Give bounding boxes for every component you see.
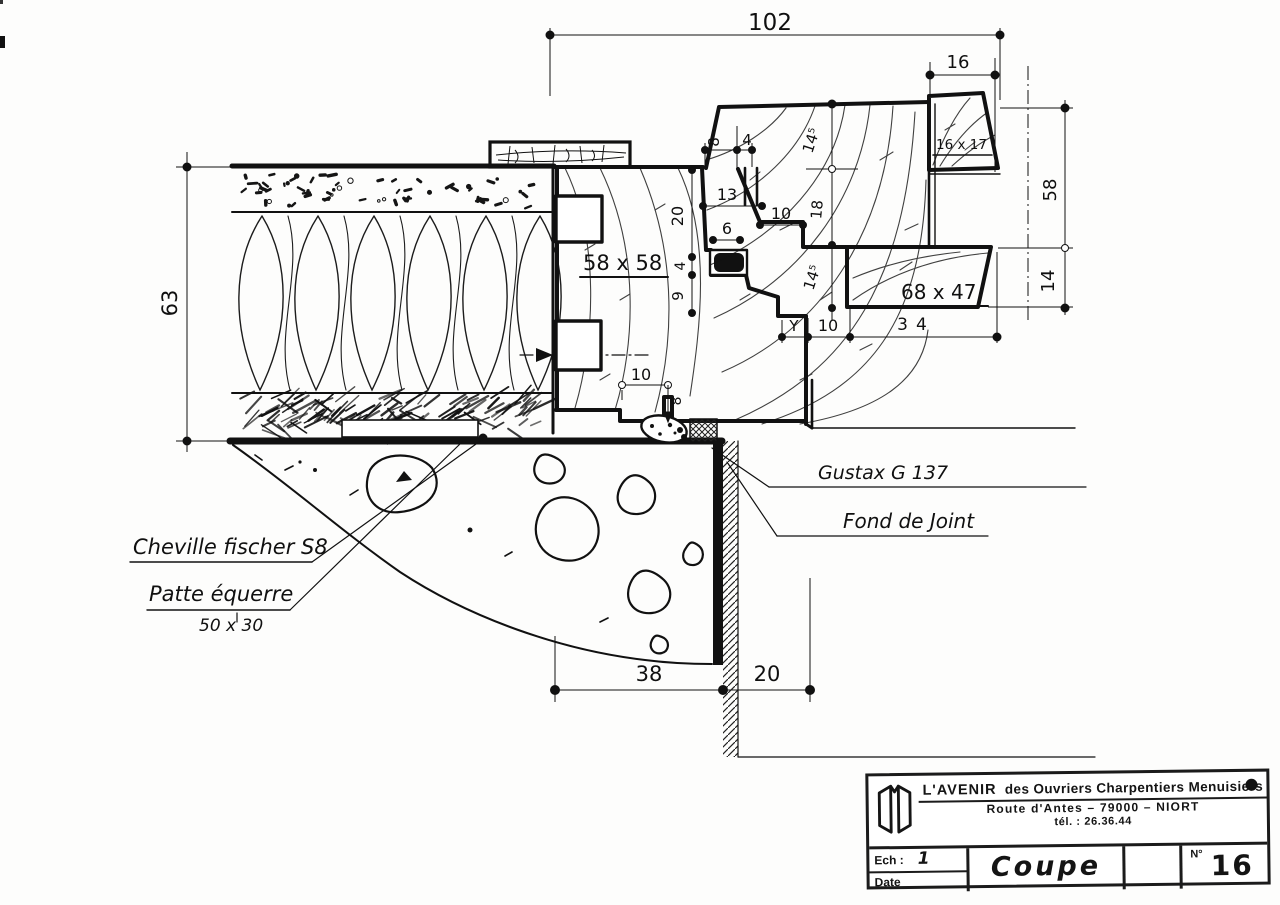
dimension-texts: 102 16 58 14 63 8 4 13 10 6 20 4 9 14⁵ 1… [158,10,1061,686]
sheet-title-cell: Coupe [969,846,1126,891]
company-phone: tél. : 26.36.44 [919,814,1268,832]
empty-cell [1125,846,1183,890]
sheet-number-cell: N°16 [1182,845,1268,889]
anchor-arrowhead [396,471,412,482]
angle-bracket [342,420,478,437]
dim-10-mid: 10 [818,316,838,335]
dim-overall: 102 [748,10,792,36]
dim-10-upper: 10 [771,204,791,223]
dimension-lines [176,28,1073,702]
packer-piece [490,142,630,167]
dim-y: Y [788,317,799,335]
joint-backing-rod [690,419,717,442]
label-frame-section: 58 x 58 [583,251,662,275]
aggregate-blobs [367,454,703,653]
dim-10-lower: 10 [631,365,651,384]
dim-20-vert: 20 [668,206,687,226]
dim-14-5-lower: 14⁵ [800,263,825,292]
sheet-title: Coupe [969,846,1122,888]
punch-dot [1245,779,1257,791]
insulation-texture [239,216,561,390]
scale-date-cell: Ech :1 Date [869,848,970,892]
anchor-leader-line [312,439,483,562]
label-bracket-size: 50 x 30 [199,616,263,636]
label-sash-section: 68 x 47 [901,280,976,304]
sheet-number-label: N° [1190,848,1202,860]
company-descriptor: des Ouvriers Charpentiers Menuisiers [1005,779,1263,797]
company-logo-icon [872,780,917,839]
title-block-header: L'AVENIR des Ouvriers Charpentiers Menui… [868,772,1267,850]
title-block: L'AVENIR des Ouvriers Charpentiers Menui… [865,769,1270,890]
dim-4-top: 4 [742,131,752,149]
sheet-number-value: 16 [1203,849,1254,883]
bracket-leader-line [290,442,462,610]
dim-8-vert: 8 [669,397,685,406]
plaster-speckle-texture [242,174,534,209]
date-label: Date [870,872,967,889]
dim-20-bottom: 20 [754,662,781,686]
concrete-section [233,428,1095,757]
dim-right-upper: 58 [1040,179,1061,202]
label-bracket: Patte équerre [149,582,293,606]
scale-label: Ech : [874,853,904,867]
scanned-technical-drawing: 102 16 58 14 63 8 4 13 10 6 20 4 9 14⁵ 1… [0,0,1280,905]
dim-14-5-upper: 14⁵ [799,126,824,155]
wall-section [230,166,722,444]
dim-8-top: 8 [705,137,723,147]
label-anchor: Cheville fischer S8 [133,535,328,559]
dim-bead-width: 16 [947,52,970,73]
dim-34: 34 [897,315,935,335]
dim-9-vert: 9 [669,291,687,301]
dim-wall-thickness: 63 [158,290,182,317]
title-block-footer: Ech :1 Date Coupe N°16 [869,845,1267,893]
dim-4-vert: 4 [673,261,689,270]
label-bead-section: 16 x 17 [936,137,987,153]
scan-artifacts [0,0,5,48]
label-sealant: Gustax G 137 [818,462,948,484]
company-name-line: L'AVENIR des Ouvriers Charpentiers Menui… [918,778,1267,803]
label-joint-filler: Fond de Joint [843,509,975,533]
dim-13: 13 [717,185,737,204]
company-name: L'AVENIR [922,782,996,799]
dim-right-lower: 14 [1038,270,1059,293]
scale-value: 1 [918,852,930,867]
dim-38: 38 [636,662,663,686]
section-drawing-canvas: 102 16 58 14 63 8 4 13 10 6 20 4 9 14⁵ 1… [0,0,1280,905]
dim-18-vert: 18 [807,199,827,220]
dim-6: 6 [722,219,732,238]
